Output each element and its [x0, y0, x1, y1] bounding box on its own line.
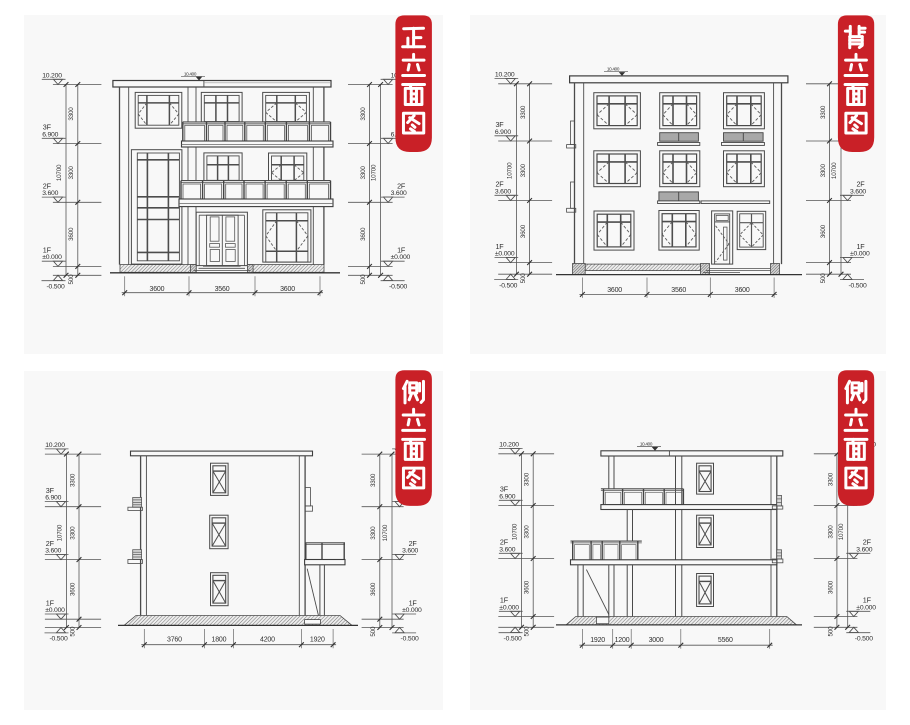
svg-text:1F: 1F	[496, 242, 505, 251]
svg-text:3300: 3300	[370, 526, 377, 540]
svg-text:3300: 3300	[520, 164, 527, 178]
svg-text:±0.000: ±0.000	[402, 607, 422, 614]
svg-text:±0.000: ±0.000	[856, 604, 876, 611]
svg-text:10.200: 10.200	[45, 442, 65, 449]
svg-text:3600: 3600	[360, 227, 367, 241]
svg-text:3.600: 3.600	[391, 190, 407, 197]
svg-text:3560: 3560	[671, 287, 686, 294]
svg-text:3300: 3300	[370, 473, 377, 487]
svg-text:-0.500: -0.500	[499, 282, 517, 289]
svg-text:-0.500: -0.500	[848, 282, 866, 289]
svg-text:2F: 2F	[397, 182, 406, 191]
svg-text:-0.500: -0.500	[401, 636, 419, 643]
svg-text:3F: 3F	[496, 120, 505, 129]
svg-text:10700: 10700	[371, 164, 378, 181]
svg-text:6.900: 6.900	[45, 495, 61, 502]
svg-text:-0.500: -0.500	[504, 636, 522, 643]
svg-text:-0.500: -0.500	[389, 284, 407, 291]
svg-text:3300: 3300	[827, 472, 834, 486]
svg-text:3600: 3600	[607, 287, 622, 294]
svg-text:500: 500	[524, 626, 531, 637]
svg-text:10.400: 10.400	[184, 71, 197, 76]
svg-text:±0.000: ±0.000	[42, 254, 62, 261]
svg-text:10700: 10700	[838, 523, 845, 540]
svg-text:3600: 3600	[69, 582, 76, 596]
svg-text:10.200: 10.200	[499, 442, 519, 449]
svg-text:3F: 3F	[43, 123, 52, 132]
svg-text:-0.500: -0.500	[855, 636, 873, 643]
svg-text:500: 500	[68, 274, 75, 285]
svg-text:5560: 5560	[718, 637, 733, 644]
svg-text:3300: 3300	[524, 472, 531, 486]
svg-text:±0.000: ±0.000	[499, 604, 519, 611]
svg-text:3600: 3600	[827, 580, 834, 594]
svg-text:3.600: 3.600	[42, 190, 58, 197]
svg-text:3600: 3600	[524, 580, 531, 594]
svg-text:3600: 3600	[520, 224, 527, 238]
svg-text:2F: 2F	[409, 539, 418, 548]
svg-text:500: 500	[827, 626, 834, 637]
svg-text:3600: 3600	[370, 582, 377, 596]
svg-text:3300: 3300	[360, 107, 367, 121]
svg-text:1F: 1F	[43, 246, 52, 255]
svg-text:3.600: 3.600	[45, 547, 61, 554]
svg-text:500: 500	[520, 273, 527, 284]
svg-text:3600: 3600	[68, 227, 75, 241]
svg-text:1920: 1920	[590, 637, 605, 644]
svg-text:500: 500	[69, 626, 76, 637]
svg-text:3.600: 3.600	[402, 547, 418, 554]
svg-text:2F: 2F	[500, 538, 509, 547]
svg-text:±0.000: ±0.000	[391, 254, 411, 261]
svg-text:500: 500	[820, 273, 827, 284]
svg-text:1800: 1800	[212, 637, 227, 644]
svg-text:1F: 1F	[857, 242, 866, 251]
svg-text:1F: 1F	[500, 596, 509, 605]
svg-text:3560: 3560	[215, 286, 230, 293]
svg-text:3760: 3760	[167, 637, 182, 644]
svg-text:10700: 10700	[57, 524, 64, 541]
svg-text:3300: 3300	[68, 166, 75, 180]
svg-text:3300: 3300	[360, 166, 367, 180]
svg-text:2F: 2F	[496, 180, 505, 189]
svg-text:10700: 10700	[382, 524, 389, 541]
svg-text:3300: 3300	[68, 107, 75, 121]
svg-text:6.900: 6.900	[42, 131, 58, 138]
svg-text:3300: 3300	[69, 526, 76, 540]
svg-text:10700: 10700	[512, 523, 519, 540]
svg-text:3300: 3300	[820, 164, 827, 178]
svg-text:1F: 1F	[863, 596, 872, 605]
svg-text:3000: 3000	[649, 637, 664, 644]
svg-text:3300: 3300	[69, 473, 76, 487]
svg-text:10.400: 10.400	[607, 67, 620, 72]
svg-text:2F: 2F	[857, 180, 866, 189]
svg-text:3.600: 3.600	[499, 546, 515, 553]
svg-text:10.200: 10.200	[42, 72, 62, 79]
svg-text:-0.500: -0.500	[49, 636, 67, 643]
svg-text:3.600: 3.600	[850, 188, 866, 195]
svg-text:1F: 1F	[397, 246, 406, 255]
svg-text:10700: 10700	[56, 164, 63, 181]
svg-text:2F: 2F	[46, 539, 55, 548]
svg-text:6.900: 6.900	[495, 129, 511, 136]
svg-text:3600: 3600	[280, 286, 295, 293]
svg-text:3300: 3300	[524, 525, 531, 539]
svg-text:3.600: 3.600	[856, 546, 872, 553]
svg-text:4200: 4200	[260, 637, 275, 644]
svg-text:1200: 1200	[615, 637, 630, 644]
svg-text:±0.000: ±0.000	[495, 250, 515, 257]
svg-text:3600: 3600	[150, 286, 165, 293]
svg-text:500: 500	[360, 274, 367, 285]
svg-text:±0.000: ±0.000	[45, 607, 65, 614]
svg-text:10.400: 10.400	[640, 442, 653, 447]
svg-text:3600: 3600	[735, 287, 750, 294]
svg-text:3600: 3600	[820, 224, 827, 238]
svg-text:10700: 10700	[507, 162, 514, 179]
svg-text:1F: 1F	[409, 598, 418, 607]
svg-text:500: 500	[370, 626, 377, 637]
svg-text:3F: 3F	[500, 485, 509, 494]
svg-text:1920: 1920	[310, 637, 325, 644]
svg-text:3300: 3300	[820, 105, 827, 119]
svg-text:6.900: 6.900	[499, 493, 515, 500]
svg-text:-0.500: -0.500	[46, 284, 64, 291]
svg-text:2F: 2F	[863, 538, 872, 547]
svg-text:10700: 10700	[831, 162, 838, 179]
svg-text:2F: 2F	[43, 182, 52, 191]
svg-text:3F: 3F	[46, 486, 55, 495]
svg-text:1F: 1F	[46, 598, 55, 607]
svg-text:±0.000: ±0.000	[850, 250, 870, 257]
svg-text:3.600: 3.600	[495, 188, 511, 195]
svg-text:3300: 3300	[827, 525, 834, 539]
svg-text:10.200: 10.200	[495, 72, 515, 79]
svg-text:3300: 3300	[520, 105, 527, 119]
